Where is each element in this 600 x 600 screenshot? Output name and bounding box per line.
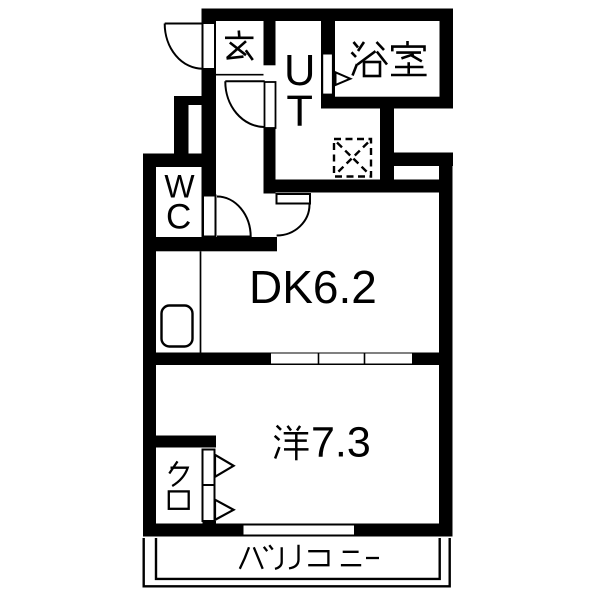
svg-text:7.3: 7.3	[311, 419, 371, 467]
svg-text:C: C	[166, 198, 191, 237]
svg-text:T: T	[286, 88, 313, 136]
svg-text:DK6.2: DK6.2	[249, 261, 377, 313]
